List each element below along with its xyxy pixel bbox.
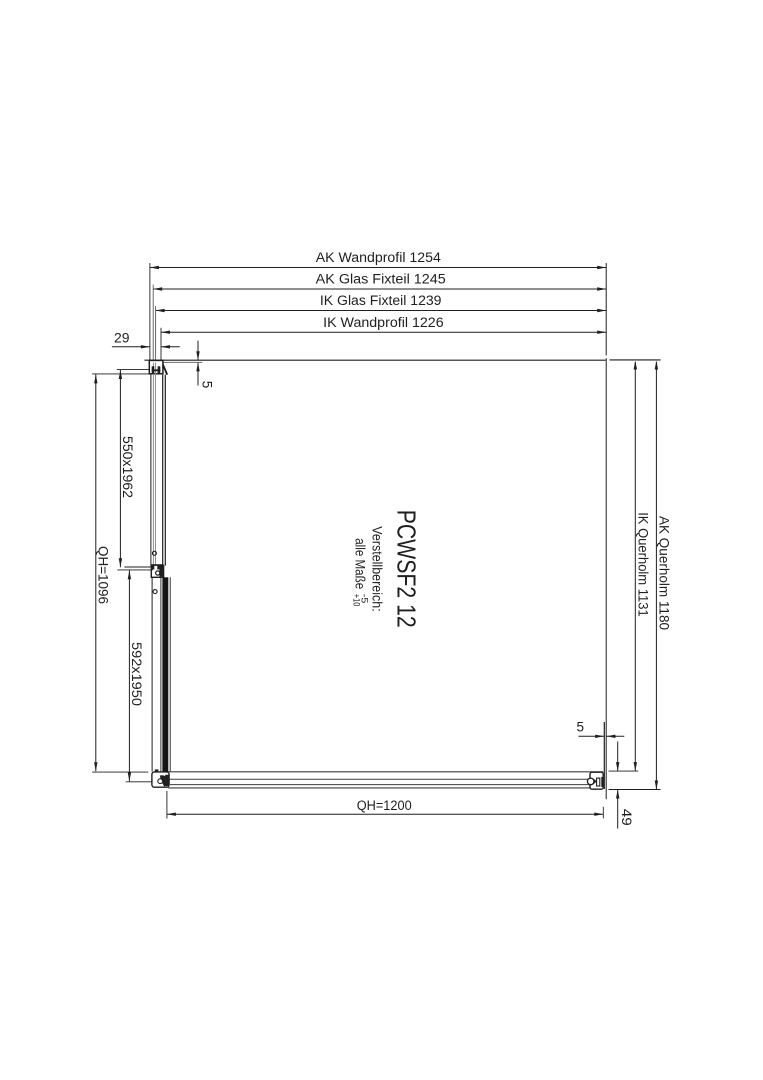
svg-text:QH=1096: QH=1096 <box>95 546 111 604</box>
svg-text:IK Wandprofil 1226: IK Wandprofil 1226 <box>323 315 444 331</box>
svg-text:AK Glas Fixteil 1245: AK Glas Fixteil 1245 <box>316 272 446 288</box>
svg-text:PCWSF2 12: PCWSF2 12 <box>392 510 420 628</box>
svg-text:Verstellbereich:: Verstellbereich: <box>369 526 384 612</box>
svg-text:5: 5 <box>576 720 584 735</box>
svg-text:IK Glas Fixteil 1239: IK Glas Fixteil 1239 <box>320 293 442 309</box>
svg-text:AK Querholm 1180: AK Querholm 1180 <box>656 516 672 630</box>
svg-text:592x1950: 592x1950 <box>128 642 144 706</box>
svg-text:QH=1200: QH=1200 <box>357 798 412 814</box>
svg-text:alle Maße: alle Maße <box>352 538 367 589</box>
svg-text:49: 49 <box>618 809 634 826</box>
svg-text:IK Querholm 1131: IK Querholm 1131 <box>634 512 650 617</box>
svg-text:550x1962: 550x1962 <box>119 436 135 498</box>
svg-text:29: 29 <box>114 330 130 346</box>
svg-text:AK Wandprofil 1254: AK Wandprofil 1254 <box>316 250 441 266</box>
svg-text:5: 5 <box>200 381 215 389</box>
svg-text:+10: +10 <box>350 594 361 607</box>
